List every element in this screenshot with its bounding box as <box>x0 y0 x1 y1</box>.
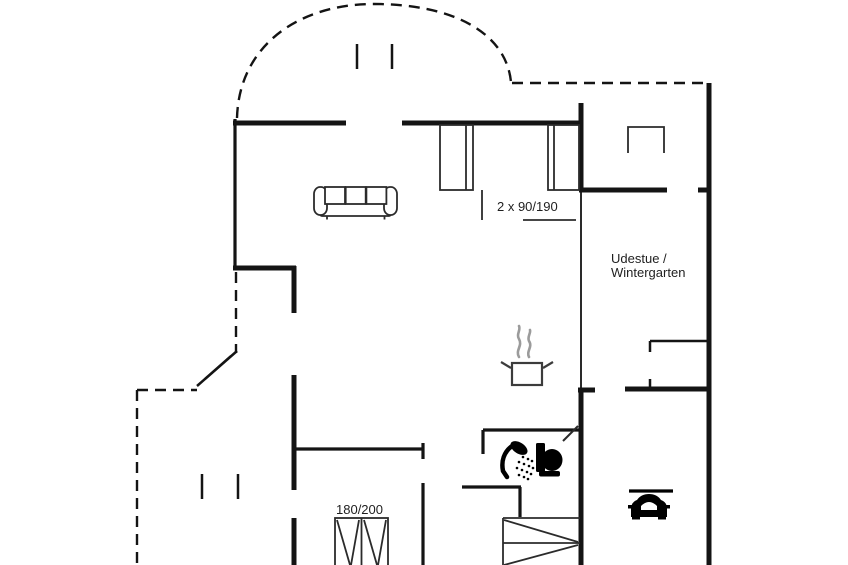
pot-body <box>512 363 542 385</box>
sofa-cushion-1 <box>325 187 345 204</box>
single-bed-left <box>440 125 473 190</box>
double-bed-icon <box>335 518 388 565</box>
sofa-cushion-3 <box>366 187 386 204</box>
label-double-bed-size: 180/200 <box>336 502 383 517</box>
car-wheel-right <box>658 514 666 520</box>
toilet-bowl <box>542 449 563 471</box>
car-mirror-left <box>628 505 632 509</box>
label-udestue-line2: Wintergarten <box>611 265 685 280</box>
sofa-cushion-2 <box>346 187 366 204</box>
label-udestue-line1: Udestue / <box>611 251 667 266</box>
floor-plan-svg: 2 x 90/190 Udestue / Wintergarten 180/20… <box>0 0 848 565</box>
canvas-background <box>0 0 848 565</box>
label-beds-size: 2 x 90/190 <box>497 199 558 214</box>
toilet-base <box>539 471 560 477</box>
single-bed-right <box>548 125 579 190</box>
car-wheel-left <box>632 514 640 520</box>
sofa-icon <box>314 187 397 220</box>
car-mirror-right <box>666 505 670 509</box>
floor-plan-page: 2 x 90/190 Udestue / Wintergarten 180/20… <box>0 0 848 565</box>
